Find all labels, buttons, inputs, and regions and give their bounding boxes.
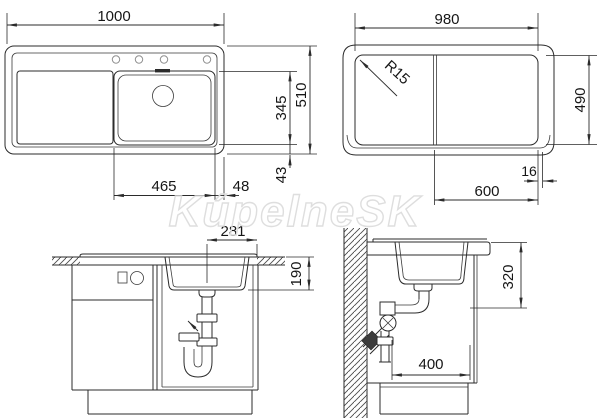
handle-knob xyxy=(131,272,144,285)
outlet-stub xyxy=(188,321,198,331)
wall-hatch xyxy=(344,228,367,418)
dim-bowl-length: 345 xyxy=(219,72,297,145)
siphon-nut-1 xyxy=(197,314,217,322)
dim-label-490: 490 xyxy=(572,87,589,112)
wall-section xyxy=(344,228,367,418)
dim-label-16: 16 xyxy=(521,163,537,179)
drain-fitting-front xyxy=(199,290,215,297)
dim-label-980: 980 xyxy=(434,11,459,28)
dim-corner-radius: R15 xyxy=(360,57,413,96)
valve-body xyxy=(380,302,395,315)
dim-label-43: 43 xyxy=(273,167,290,184)
drainboard xyxy=(17,71,113,144)
bowl-section-side xyxy=(395,242,468,291)
underside-outline xyxy=(343,45,554,155)
bowl-inner-side xyxy=(399,242,464,280)
trap-outer xyxy=(184,346,212,377)
countertop-side xyxy=(367,239,490,255)
dim-overall-width: 1000 xyxy=(7,8,224,44)
dim-label-345: 345 xyxy=(273,95,290,120)
tap-hole-2 xyxy=(135,56,142,63)
dim-edge-lip: 16 xyxy=(521,152,557,188)
tap-holes xyxy=(112,56,210,63)
dim-label-510: 510 xyxy=(293,82,310,107)
dim-label-320: 320 xyxy=(500,264,517,289)
tap-hole-4 xyxy=(203,56,210,63)
technical-drawing-page: 1000 345 510 43 465 48 xyxy=(0,0,600,420)
bowl-outer-rim xyxy=(114,71,215,145)
handle-square xyxy=(118,272,127,283)
siphon-front xyxy=(179,297,217,377)
bowl-inner-wall xyxy=(118,75,211,141)
dim-clearance-width: 400 xyxy=(392,340,470,380)
front-section-view: 281 190 xyxy=(52,223,314,414)
trap-inner xyxy=(194,346,202,367)
counter-hatch-right xyxy=(257,258,285,265)
siphon-nut-2 xyxy=(197,338,217,346)
dim-label-r15: R15 xyxy=(381,57,413,88)
dim-label-190: 190 xyxy=(288,261,305,286)
tap-hole-3 xyxy=(160,56,167,63)
side-section-view: 320 400 xyxy=(344,228,527,418)
drop-pipe-nut xyxy=(377,337,393,345)
counter-hatch-left xyxy=(52,258,80,265)
siphon-nut-3 xyxy=(179,333,199,341)
countertop-front xyxy=(52,254,285,265)
overflow-slot xyxy=(155,69,170,72)
bowl-outer-side xyxy=(395,242,468,284)
dim-edge-gap: 43 xyxy=(273,145,290,184)
dim-label-600: 600 xyxy=(474,183,499,200)
sink-dimension-diagram: 1000 345 510 43 465 48 xyxy=(0,0,600,420)
drain-hole xyxy=(153,86,174,107)
tap-hole-1 xyxy=(112,56,119,63)
dim-label-1000: 1000 xyxy=(97,8,130,25)
dim-label-400: 400 xyxy=(418,356,443,373)
siphon-side xyxy=(362,291,429,362)
underside-bottom-lip xyxy=(347,135,550,148)
dim-overall-depth: 510 xyxy=(227,46,317,154)
dim-under-counter-depth: 320 xyxy=(470,243,527,309)
sink-top-view: 1000 345 510 43 465 48 xyxy=(5,8,317,200)
drain-fitting-side xyxy=(414,284,432,291)
watermark-text: KúpelneSK xyxy=(169,187,423,236)
sink-underside-view: 980 R15 490 600 16 xyxy=(343,11,597,205)
